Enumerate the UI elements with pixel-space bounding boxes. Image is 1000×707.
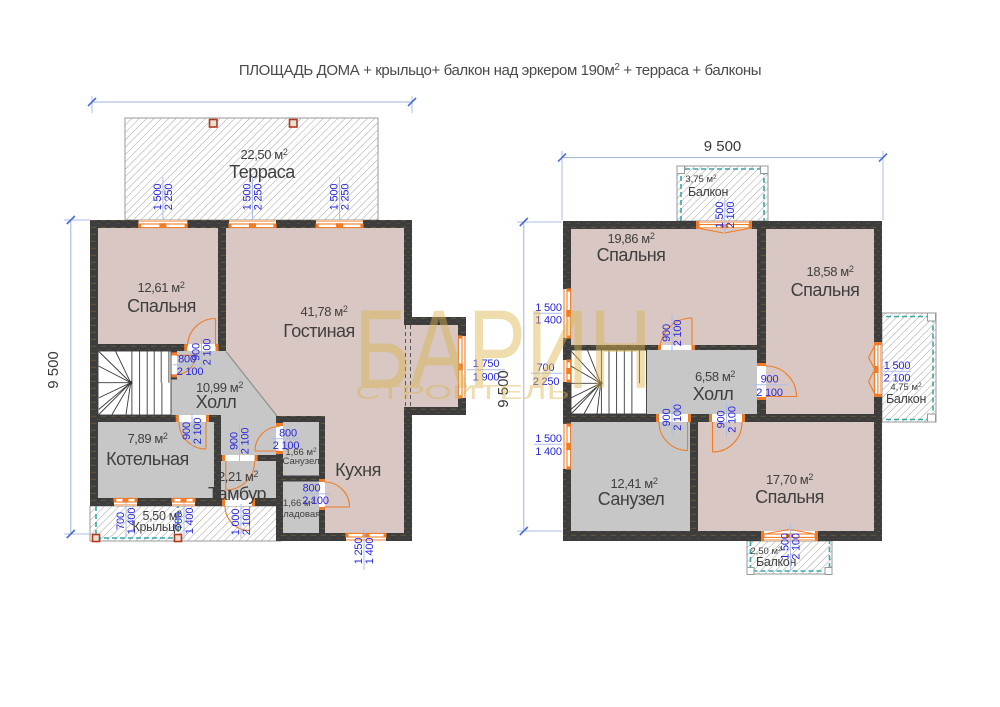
- svg-text:Спальня: Спальня: [791, 280, 860, 300]
- svg-text:9 500: 9 500: [704, 138, 742, 155]
- svg-text:Кладовая: Кладовая: [278, 509, 321, 520]
- svg-text:ПЛОЩАДЬ ДОМА + крыльцо+ балкон: ПЛОЩАДЬ ДОМА + крыльцо+ балкон над эркер…: [239, 62, 761, 79]
- svg-text:2 100: 2 100: [273, 440, 300, 452]
- svg-text:1 500: 1 500: [884, 360, 911, 372]
- svg-text:Кухня: Кухня: [335, 460, 381, 480]
- svg-text:18,58 м2: 18,58 м2: [807, 264, 854, 279]
- svg-text:6,58 м2: 6,58 м2: [695, 369, 735, 384]
- svg-text:Спальня: Спальня: [127, 296, 196, 316]
- svg-text:2 100: 2 100: [302, 495, 329, 507]
- svg-text:1 400: 1 400: [126, 508, 138, 535]
- svg-text:1 400: 1 400: [364, 538, 376, 565]
- svg-text:Тамбур: Тамбур: [208, 484, 267, 504]
- svg-text:2 100: 2 100: [192, 418, 204, 445]
- svg-text:2 100: 2 100: [727, 406, 739, 433]
- svg-text:19,86 м2: 19,86 м2: [608, 231, 655, 246]
- svg-text:2 250: 2 250: [253, 184, 265, 211]
- svg-text:2 100: 2 100: [791, 533, 803, 560]
- svg-text:Санузел: Санузел: [282, 456, 319, 467]
- svg-text:12,61 м2: 12,61 м2: [138, 280, 185, 295]
- svg-text:41,78 м2: 41,78 м2: [301, 304, 348, 319]
- svg-text:1 400: 1 400: [184, 508, 196, 535]
- svg-text:Котельная: Котельная: [106, 449, 189, 469]
- svg-text:2 100: 2 100: [241, 509, 253, 536]
- svg-text:Холл: Холл: [196, 392, 236, 412]
- svg-text:2 100: 2 100: [672, 320, 684, 347]
- svg-text:2 100: 2 100: [202, 339, 214, 366]
- svg-text:2 100: 2 100: [884, 373, 911, 385]
- svg-text:2 100: 2 100: [725, 202, 737, 229]
- svg-text:22,50 м2: 22,50 м2: [241, 147, 288, 162]
- svg-text:Спальня: Спальня: [597, 245, 666, 265]
- svg-text:Холл: Холл: [693, 384, 733, 404]
- svg-text:1 500: 1 500: [535, 433, 562, 445]
- svg-text:Балкон: Балкон: [886, 392, 927, 406]
- svg-text:2 250: 2 250: [163, 184, 175, 211]
- svg-text:Гостиная: Гостиная: [283, 321, 355, 341]
- svg-text:2 250: 2 250: [340, 184, 352, 211]
- svg-text:2 100: 2 100: [672, 404, 684, 431]
- svg-text:17,70 м2: 17,70 м2: [766, 472, 813, 487]
- svg-text:9 500: 9 500: [45, 351, 62, 389]
- svg-text:1 400: 1 400: [535, 446, 562, 458]
- svg-text:СТРОИТЕЛЬ: СТРОИТЕЛЬ: [355, 382, 570, 404]
- svg-text:Балкон: Балкон: [688, 185, 729, 199]
- svg-text:800: 800: [303, 483, 321, 495]
- svg-text:900: 900: [761, 374, 779, 386]
- svg-text:2 100: 2 100: [240, 428, 252, 455]
- svg-text:7,89 м2: 7,89 м2: [127, 431, 167, 446]
- svg-text:Терраса: Терраса: [229, 162, 296, 182]
- svg-text:3,75 м2: 3,75 м2: [685, 174, 717, 185]
- svg-text:2 100: 2 100: [756, 387, 783, 399]
- svg-text:800: 800: [279, 428, 297, 440]
- svg-text:Спальня: Спальня: [755, 487, 824, 507]
- svg-text:Санузел: Санузел: [598, 489, 665, 509]
- svg-text:2 100: 2 100: [177, 366, 204, 378]
- svg-text:2,21 м2: 2,21 м2: [218, 469, 258, 484]
